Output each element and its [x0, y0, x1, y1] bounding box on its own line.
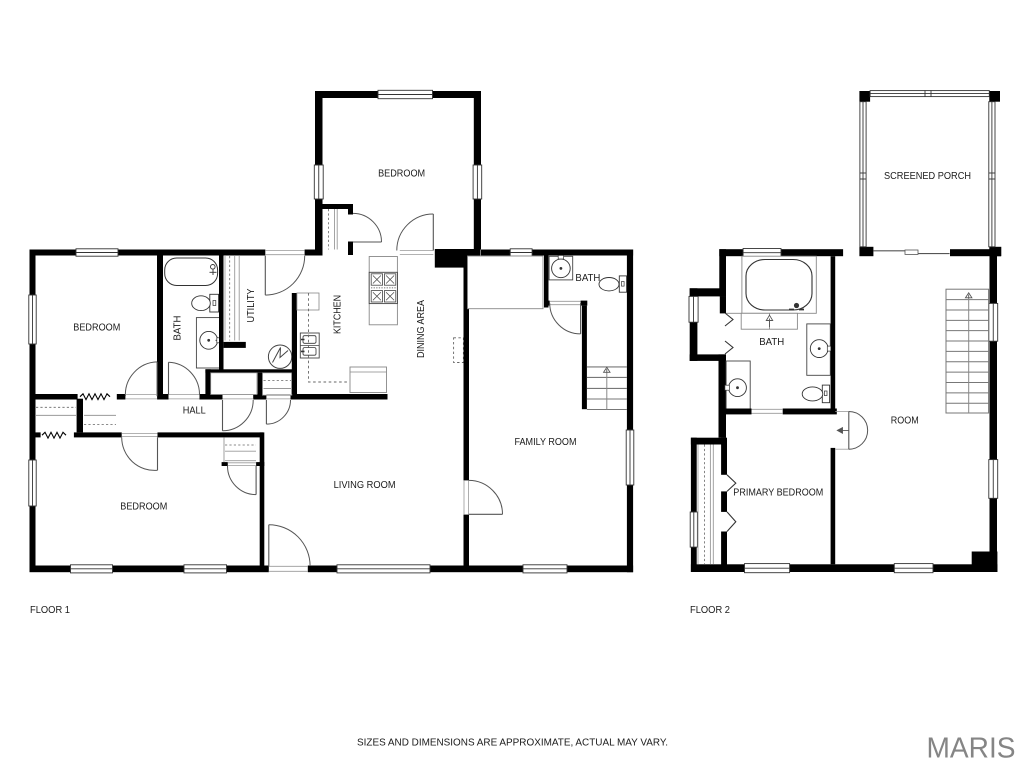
svg-text:FAMILY ROOM: FAMILY ROOM: [515, 437, 577, 448]
svg-text:BATH: BATH: [575, 273, 600, 284]
svg-text:BEDROOM: BEDROOM: [120, 501, 167, 512]
svg-text:DINING AREA: DINING AREA: [416, 300, 427, 358]
svg-text:ROOM: ROOM: [891, 415, 919, 426]
svg-text:PRIMARY BEDROOM: PRIMARY BEDROOM: [733, 487, 823, 498]
svg-text:BATH: BATH: [173, 316, 184, 341]
svg-text:SIZES AND DIMENSIONS ARE APPRO: SIZES AND DIMENSIONS ARE APPROXIMATE, AC…: [357, 737, 668, 748]
svg-text:UTILITY: UTILITY: [246, 288, 257, 322]
svg-text:BEDROOM: BEDROOM: [378, 169, 425, 180]
svg-text:BATH: BATH: [759, 337, 784, 348]
svg-text:FLOOR 2: FLOOR 2: [690, 605, 730, 616]
svg-text:KITCHEN: KITCHEN: [332, 295, 343, 334]
svg-text:MARIS: MARIS: [927, 733, 1016, 765]
svg-text:HALL: HALL: [183, 406, 206, 417]
svg-text:LIVING ROOM: LIVING ROOM: [334, 480, 396, 491]
svg-text:SCREENED PORCH: SCREENED PORCH: [884, 171, 971, 182]
svg-text:FLOOR 1: FLOOR 1: [30, 605, 70, 616]
svg-text:BEDROOM: BEDROOM: [73, 323, 120, 334]
